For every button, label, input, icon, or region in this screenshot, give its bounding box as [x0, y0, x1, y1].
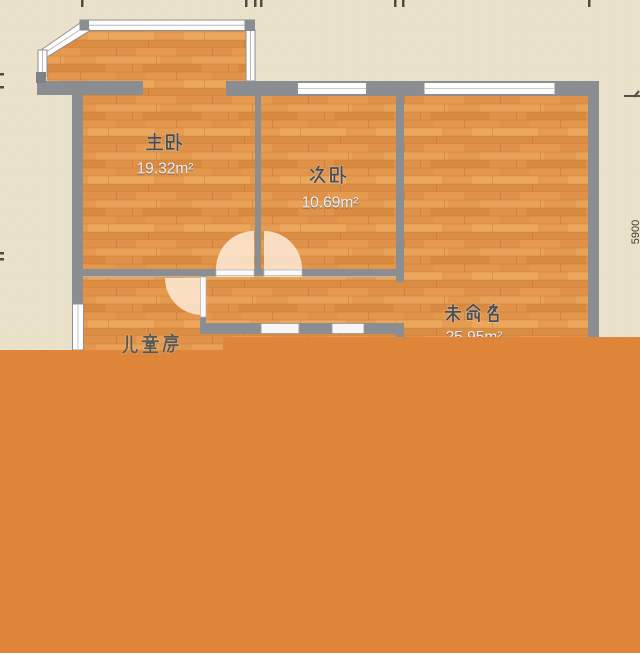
- svg-text:10.69m²: 10.69m²: [302, 195, 359, 212]
- svg-text:5900: 5900: [630, 220, 640, 244]
- svg-text:19.32m²: 19.32m²: [137, 161, 194, 178]
